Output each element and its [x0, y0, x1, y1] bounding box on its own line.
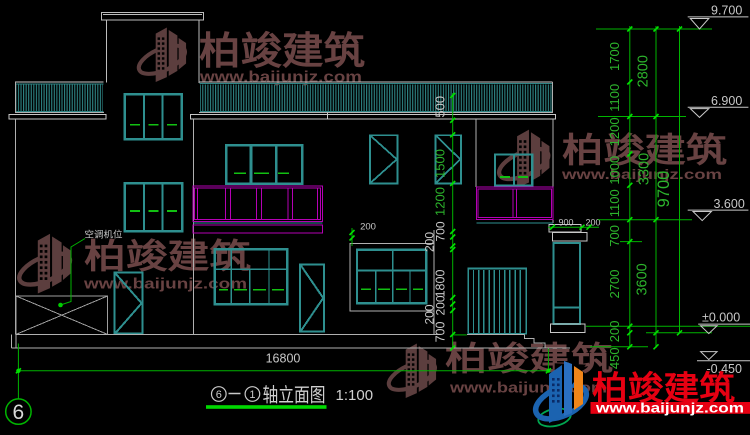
svg-text:200: 200: [423, 304, 437, 324]
svg-text:1100: 1100: [607, 84, 622, 112]
svg-text:700: 700: [607, 225, 622, 247]
svg-text:1000: 1000: [607, 156, 622, 185]
svg-text:3600: 3600: [635, 263, 651, 295]
svg-text:1200: 1200: [433, 187, 448, 216]
svg-text:1:100: 1:100: [336, 387, 374, 404]
svg-text:1200: 1200: [607, 117, 622, 146]
svg-text:450: 450: [607, 347, 622, 369]
svg-text:700: 700: [434, 322, 448, 343]
svg-text:1100: 1100: [607, 189, 622, 217]
svg-text:2700: 2700: [607, 270, 622, 299]
svg-text:500: 500: [433, 96, 448, 118]
svg-text:轴立面图: 轴立面图: [263, 385, 326, 407]
svg-text:2800: 2800: [636, 55, 652, 87]
svg-text:1800: 1800: [434, 270, 448, 298]
svg-text:柏竣建筑: 柏竣建筑: [199, 31, 365, 73]
svg-text:6.900: 6.900: [711, 94, 742, 108]
svg-text:9.700: 9.700: [711, 4, 742, 18]
svg-text:200: 200: [585, 218, 600, 228]
svg-text:1: 1: [249, 389, 255, 401]
svg-text:6: 6: [216, 389, 222, 401]
svg-text:空调机位: 空调机位: [85, 228, 123, 239]
svg-text:www.baijunjz.com: www.baijunjz.com: [595, 401, 744, 416]
svg-text:200: 200: [607, 321, 622, 343]
svg-text:6: 6: [13, 401, 25, 424]
svg-text:900: 900: [558, 218, 573, 228]
svg-text:16800: 16800: [266, 352, 301, 366]
svg-text:柏竣建筑: 柏竣建筑: [445, 340, 613, 377]
svg-text:3.600: 3.600: [714, 197, 745, 211]
svg-text:200: 200: [360, 222, 376, 233]
svg-text:±0.000: ±0.000: [702, 311, 740, 325]
svg-text:3300: 3300: [637, 153, 653, 185]
svg-text:1500: 1500: [433, 149, 448, 178]
svg-text:9700: 9700: [655, 171, 673, 208]
svg-text:1700: 1700: [607, 42, 622, 71]
svg-text:200: 200: [423, 232, 437, 252]
